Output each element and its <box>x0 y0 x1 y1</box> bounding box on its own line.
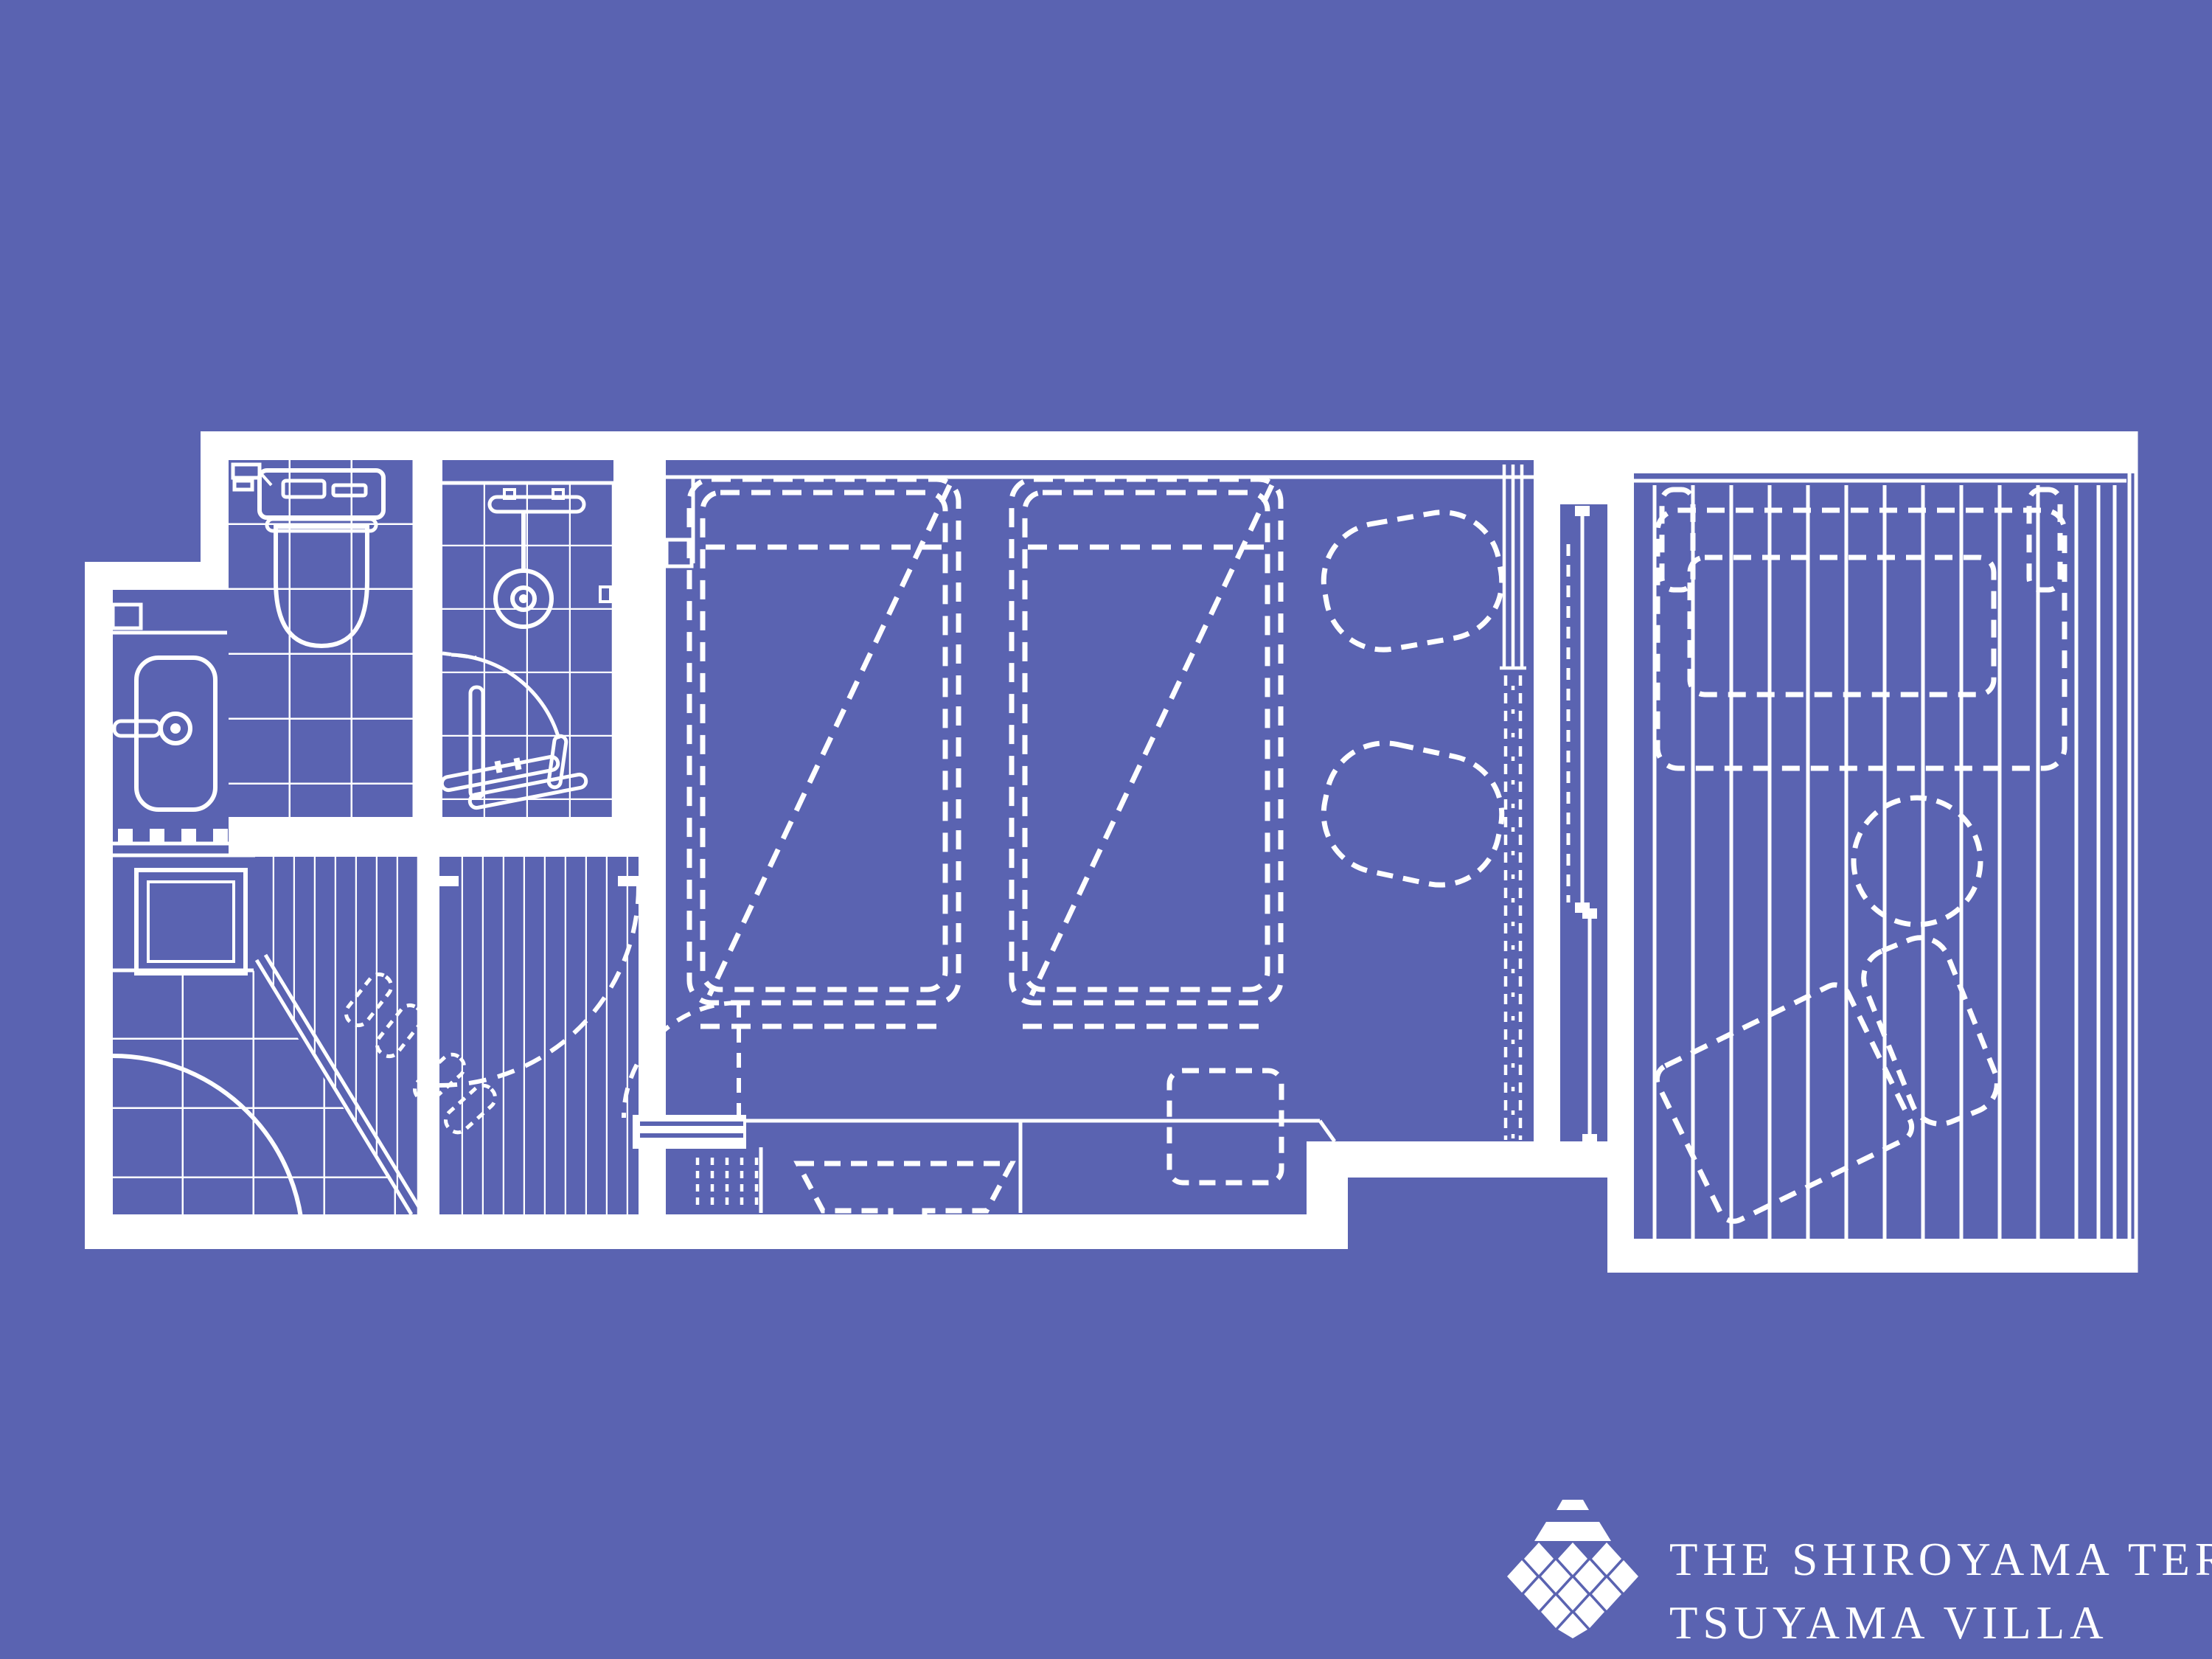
corridor-door-jamb-left <box>437 876 459 886</box>
vanity-basin <box>136 658 215 810</box>
counter-chamfer <box>1320 1121 1335 1141</box>
vanity-corner-shelf <box>113 605 141 628</box>
vanity-faucet <box>114 714 190 743</box>
sliding-screen <box>1500 465 1526 1140</box>
ottoman <box>1169 1071 1281 1183</box>
brand-name-line1: THE SHIROYAMA TERRACE <box>1669 1528 2212 1591</box>
wall-partition <box>1534 460 1560 1141</box>
mark-diamonds <box>1507 1543 1638 1638</box>
wall-bottom <box>85 1214 1335 1249</box>
wall-closet-left <box>639 1147 666 1217</box>
mark-roof-top <box>1557 1500 1589 1510</box>
chair-2 <box>1312 732 1512 896</box>
wall-top-left <box>201 431 1565 460</box>
toilet-floor-tiles <box>229 460 414 817</box>
tv-counter <box>745 1071 1335 1222</box>
engawa-room <box>1634 485 2126 1239</box>
glass-partition <box>1568 506 1597 1144</box>
toilet-room <box>229 460 414 817</box>
corridor-b-planks <box>442 857 639 1214</box>
bed-1 <box>689 479 959 1026</box>
wall-left <box>85 562 113 1249</box>
brand-name: THE SHIROYAMA TERRACE TSUYAMA VILLA <box>1669 1497 2212 1655</box>
corridor-door-jamb-right <box>618 876 640 886</box>
engawa-plank-floor <box>1634 485 2126 1239</box>
bed-1-blanket-diagonal <box>709 485 950 995</box>
wall-shower-right <box>613 460 666 818</box>
wall-corridor-right <box>639 817 666 1119</box>
wall-wetroom-bottom <box>229 817 639 857</box>
bed-2 <box>1012 479 1281 1026</box>
brand-name-line2: TSUYAMA VILLA <box>1669 1591 2212 1655</box>
floor-plan <box>0 0 2212 1659</box>
wall-step-band <box>1320 1141 1634 1178</box>
mark-roof <box>1534 1522 1611 1541</box>
shower-floor-tiles <box>442 483 613 817</box>
wall-toilet-shower-divider <box>414 460 442 818</box>
counter-basin <box>798 1164 1012 1222</box>
storage-cabinet <box>136 870 246 973</box>
bed-2-blanket-diagonal <box>1032 485 1272 995</box>
glass-door-panel-lower <box>1582 908 1597 1144</box>
wall-corridor-divider <box>417 857 439 1217</box>
wall-top-right <box>1565 431 2137 473</box>
shower-room <box>441 483 613 817</box>
brand-logo: THE SHIROYAMA TERRACE TSUYAMA VILLA <box>1506 1497 2212 1655</box>
wall-step-connector <box>1307 1141 1348 1249</box>
closet-clothes <box>698 1158 757 1209</box>
wall-partition-notch <box>1560 431 1607 504</box>
chair-1 <box>1315 503 1511 658</box>
castle-diamond-mark <box>1506 1497 1640 1638</box>
bedroom <box>624 465 1526 1222</box>
glass-door-panel-upper <box>1568 506 1590 913</box>
closet-door-sill <box>633 1115 746 1149</box>
wall-engawa-bottom <box>1634 1239 2137 1273</box>
